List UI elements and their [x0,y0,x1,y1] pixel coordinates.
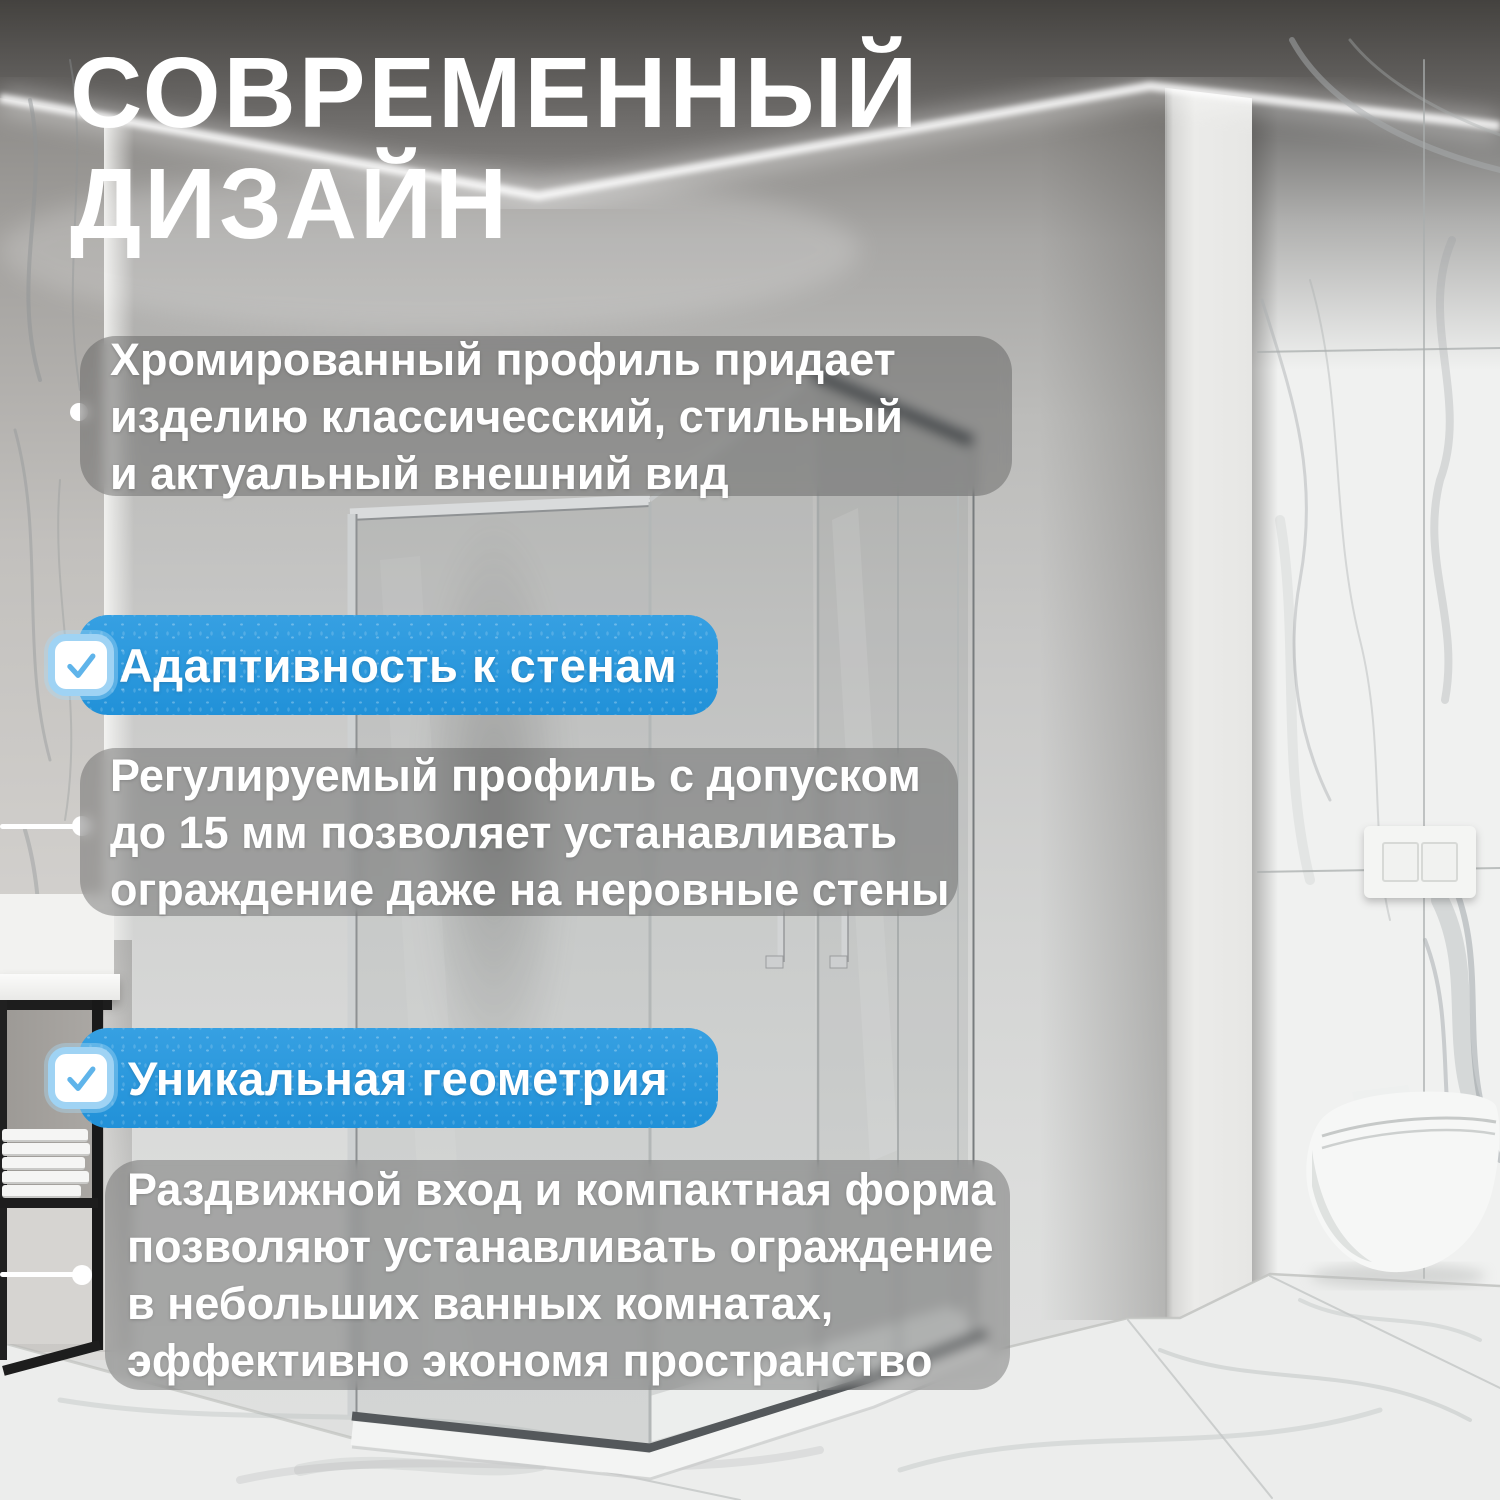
paragraph-line: до 15 мм позволяет устанавливать [110,804,958,861]
shelf-counter [0,974,120,1000]
checkbox-icon [48,634,114,696]
feature-paragraph-adjustable-profile: Регулируемый профиль с допуском до 15 мм… [80,748,958,916]
page-title: СОВРЕМЕННЫЙ ДИЗАЙН [70,38,920,260]
paragraph-line: Хромированный профиль придает [110,331,1012,388]
feature-paragraph-design: Хромированный профиль придает изделию кл… [80,336,1012,496]
title-line-2: ДИЗАЙН [70,149,920,260]
paragraph-line: изделию классичесский, стильный [110,388,1012,445]
title-line-1: СОВРЕМЕННЫЙ [70,38,920,149]
pointer-dot [72,1265,92,1285]
feature-badge-geometry: Уникальная геометрия [78,1028,718,1128]
folded-towels [2,1128,90,1198]
badge-label: Адаптивность к стенам [119,638,677,693]
pointer-line [0,1272,82,1277]
paragraph-line: в небольших ванных комнатах, [127,1275,1010,1332]
check-icon [61,1060,101,1096]
badge-label: Уникальная геометрия [128,1051,668,1106]
flush-plate [1364,826,1476,898]
paragraph-line: и актуальный внешний вид [110,445,1012,502]
flush-button-left [1382,842,1419,882]
product-infographic: СОВРЕМЕННЫЙ ДИЗАЙН Хромированный профиль… [0,0,1500,1500]
feature-badge-adaptability: Адаптивность к стенам [78,615,718,715]
checkbox-icon [48,1047,114,1109]
paragraph-line: эффективно экономя пространство [127,1332,1010,1389]
pointer-line [0,824,82,829]
shelf-frame [0,1198,98,1208]
wall-hung-toilet [1306,1085,1499,1288]
paragraph-line: ограждение даже на неровные стены [110,861,958,918]
check-icon [61,647,101,683]
flush-button-right [1421,842,1458,882]
paragraph-line: позволяют устанавливать ограждение [127,1218,1010,1275]
feature-paragraph-compact-form: Раздвижной вход и компактная форма позво… [105,1160,1010,1390]
paragraph-line: Регулируемый профиль с допуском [110,747,958,804]
paragraph-line: Раздвижной вход и компактная форма [127,1161,1010,1218]
